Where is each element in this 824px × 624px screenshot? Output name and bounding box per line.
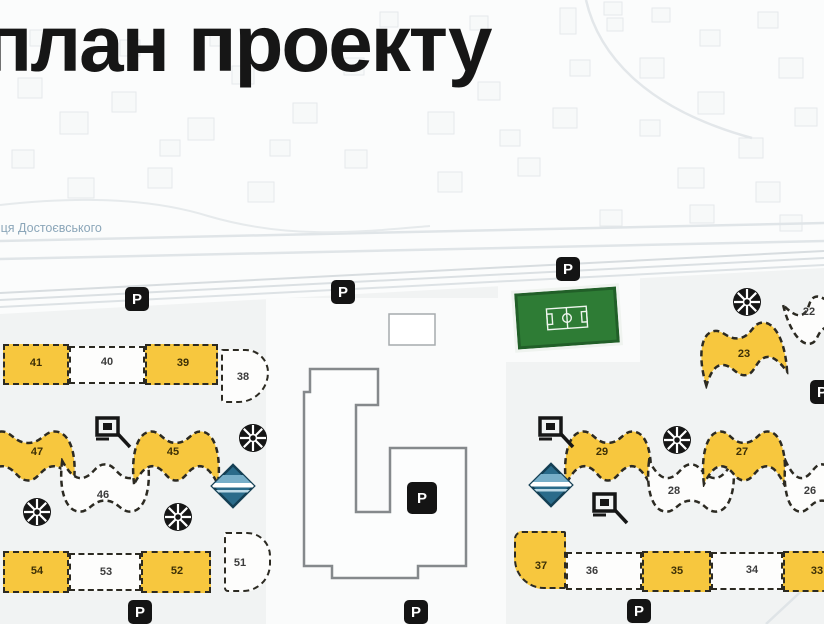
kindergarten-icon [210, 463, 256, 509]
building-number-22: 22 [803, 306, 815, 318]
soccer-field-icon [543, 303, 591, 332]
site-plan-map: 41403938 47 46 4554535251 22 23 29 28 27… [0, 0, 824, 624]
building-number-46: 46 [97, 489, 109, 501]
building-51[interactable] [224, 532, 271, 592]
building-number-27: 27 [736, 446, 748, 458]
building-number-38: 38 [237, 371, 249, 383]
page-title: план проекту [0, 2, 490, 86]
building-number-52: 52 [171, 565, 183, 577]
parking-icon: P [556, 257, 580, 281]
playground-icon [662, 425, 692, 455]
street-label: вулиця Достоєвського [0, 221, 102, 235]
building-number-40: 40 [101, 356, 113, 368]
building-number-23: 23 [738, 348, 750, 360]
parking-letter: P [411, 604, 421, 621]
building-number-26: 26 [804, 485, 816, 497]
parking-letter: P [132, 291, 142, 308]
building-number-47: 47 [31, 446, 43, 458]
playground-icon [22, 497, 52, 527]
parking-icon: P [128, 600, 152, 624]
building-number-41: 41 [30, 357, 42, 369]
building-number-45: 45 [167, 446, 179, 458]
parking-letter: P [417, 490, 427, 507]
kindergarten-icon [528, 462, 574, 508]
basketball-hoop-icon [95, 416, 133, 450]
playground-icon [163, 502, 193, 532]
parking-letter: P [634, 603, 644, 620]
building-36[interactable] [566, 552, 642, 590]
basketball-hoop-icon [592, 492, 630, 526]
parking-letter: P [338, 284, 348, 301]
building-number-39: 39 [177, 357, 189, 369]
building-number-54: 54 [31, 565, 43, 577]
parking-icon: P [331, 280, 355, 304]
building-number-28: 28 [668, 485, 680, 497]
basketball-hoop-icon [538, 416, 576, 450]
parking-icon: P [404, 600, 428, 624]
building-number-35: 35 [671, 565, 683, 577]
parking-icon: P [810, 380, 824, 404]
building-number-36: 36 [586, 565, 598, 577]
building-number-53: 53 [100, 566, 112, 578]
school-building[interactable] [514, 287, 620, 350]
parking-letter: P [135, 604, 145, 621]
playground-icon [238, 423, 268, 453]
building-number-51: 51 [234, 557, 246, 569]
building-number-37: 37 [535, 560, 547, 572]
parking-icon: P [407, 482, 437, 514]
parking-icon: P [125, 287, 149, 311]
building-number-33: 33 [811, 565, 823, 577]
parking-letter: P [563, 261, 573, 278]
plan-layers: 41403938 47 46 4554535251 22 23 29 28 27… [0, 0, 824, 624]
building-number-34: 34 [746, 564, 758, 576]
parking-letter: P [817, 384, 824, 401]
playground-icon [732, 287, 762, 317]
building-number-29: 29 [596, 446, 608, 458]
parking-icon: P [627, 599, 651, 623]
